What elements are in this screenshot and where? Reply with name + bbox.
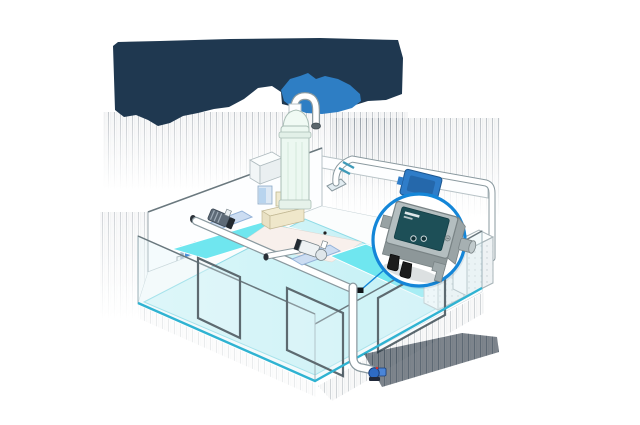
tank-base	[279, 200, 311, 209]
pump-indicator-red	[376, 367, 379, 370]
basin-drain-dot	[323, 231, 326, 234]
illustration-canvas	[0, 0, 640, 425]
back-cabinet-blue-door	[259, 188, 266, 203]
pump2-pipe-cap	[263, 253, 268, 260]
callout-anchor-marker	[358, 288, 364, 294]
tank-u-pipe-cap	[312, 123, 321, 129]
tank-flange-ring	[279, 132, 311, 138]
